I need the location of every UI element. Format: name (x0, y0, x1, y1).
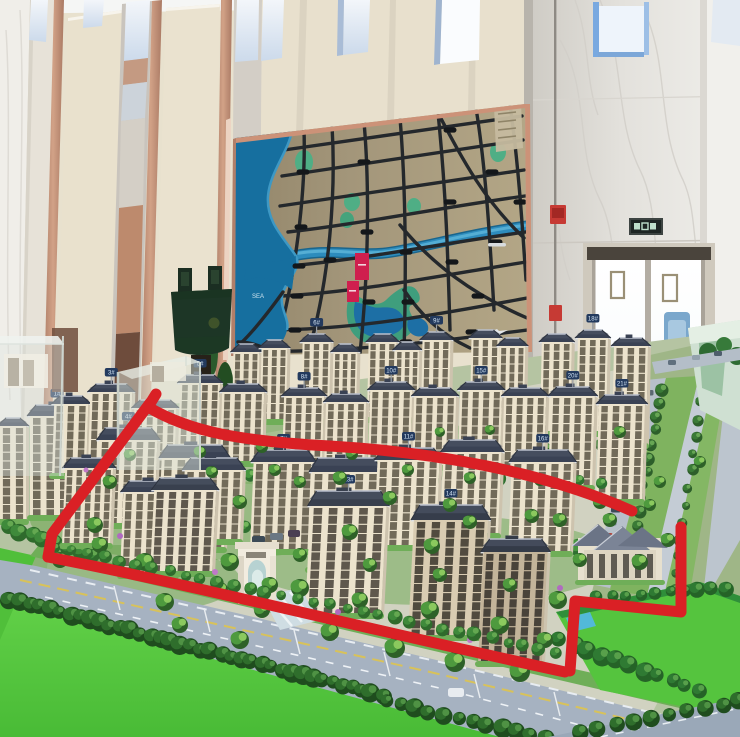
svg-text:15#: 15# (476, 369, 487, 375)
svg-text:20#: 20# (568, 374, 579, 380)
svg-text:16#: 16# (538, 437, 549, 443)
svg-text:10#: 10# (386, 369, 397, 375)
svg-text:21#: 21# (617, 382, 628, 388)
svg-text:14#: 14# (446, 492, 457, 498)
svg-text:3#: 3# (108, 371, 115, 377)
svg-text:6#: 6# (313, 321, 320, 327)
svg-text:8#: 8# (301, 375, 308, 381)
svg-text:9#: 9# (433, 319, 440, 325)
svg-text:11#: 11# (404, 435, 414, 441)
svg-text:SEA: SEA (252, 294, 264, 300)
svg-text:18#: 18# (588, 317, 599, 323)
